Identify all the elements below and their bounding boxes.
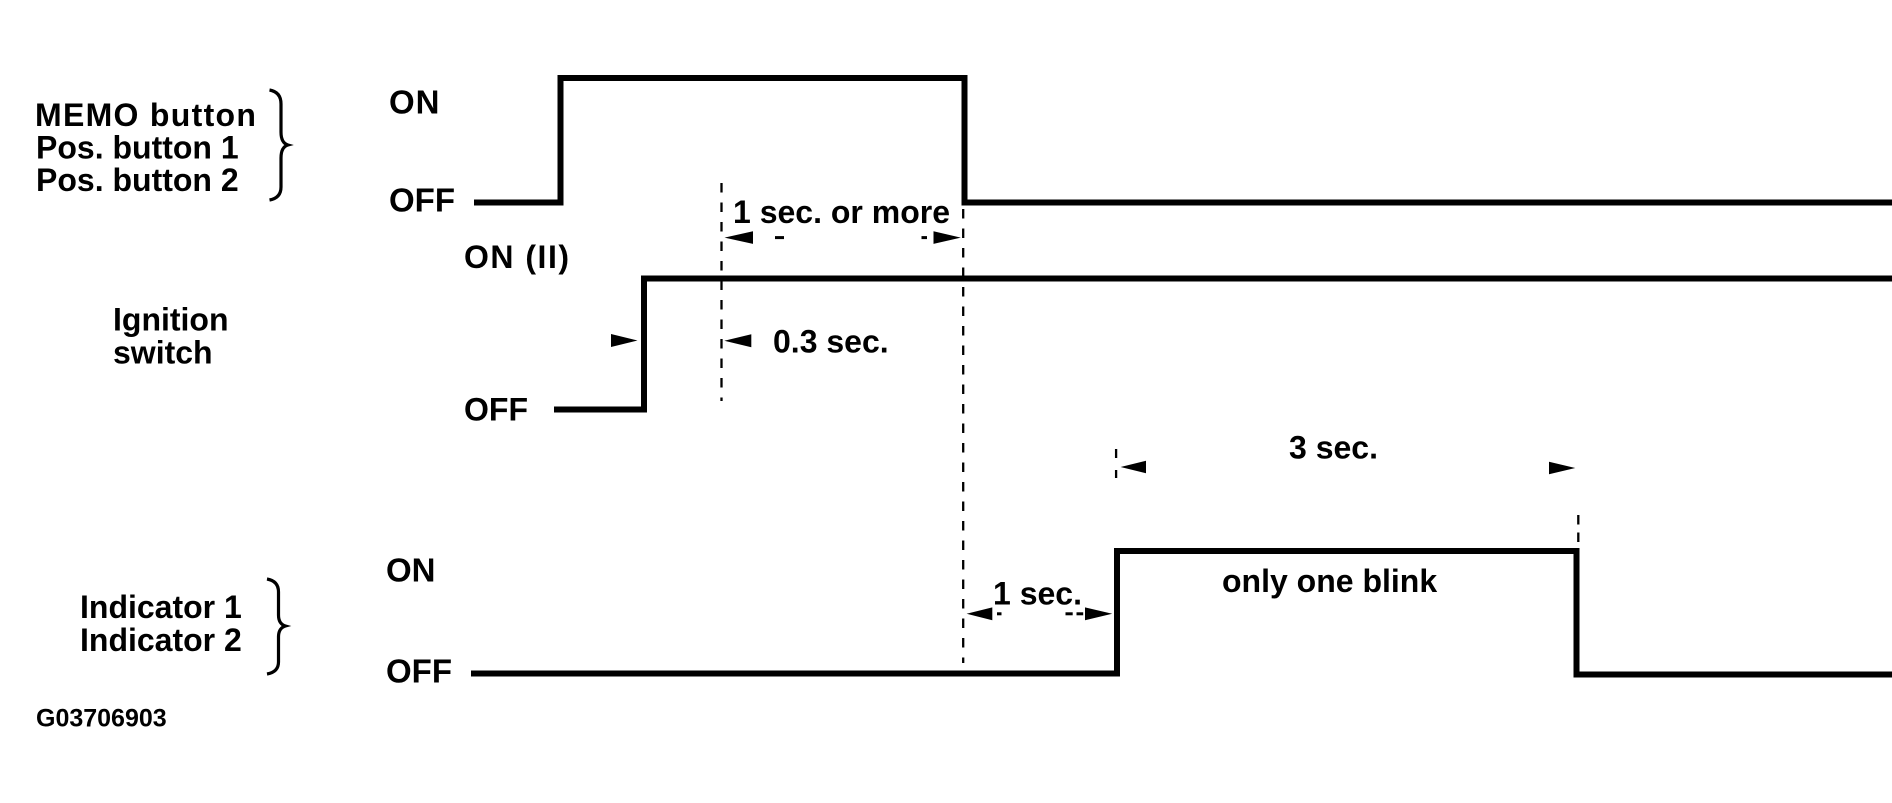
svg-text:3 sec.: 3 sec. <box>1289 430 1378 466</box>
svg-text:OFF: OFF <box>464 392 528 428</box>
svg-text:0.3 sec.: 0.3 sec. <box>773 324 889 360</box>
svg-text:1 sec. or more: 1 sec. or more <box>733 194 950 230</box>
svg-text:Pos. button 1: Pos. button 1 <box>36 130 239 166</box>
svg-text:MEMO button: MEMO button <box>35 97 257 133</box>
svg-text:Indicator 1: Indicator 1 <box>80 589 242 625</box>
svg-text:G03706903: G03706903 <box>36 705 167 733</box>
svg-text:1 sec.: 1 sec. <box>993 576 1082 612</box>
svg-text:Ignition: Ignition <box>113 302 229 338</box>
svg-text:Pos. button 2: Pos. button 2 <box>36 162 239 198</box>
svg-text:OFF: OFF <box>386 653 452 690</box>
svg-text:OFF: OFF <box>389 182 455 219</box>
svg-text:ON: ON <box>389 84 441 121</box>
svg-text:Indicator 2: Indicator 2 <box>80 622 242 658</box>
svg-text:only one blink: only one blink <box>1222 563 1437 599</box>
svg-text:switch: switch <box>113 335 213 371</box>
svg-text:ON (II): ON (II) <box>464 239 570 275</box>
svg-text:ON: ON <box>386 552 436 589</box>
